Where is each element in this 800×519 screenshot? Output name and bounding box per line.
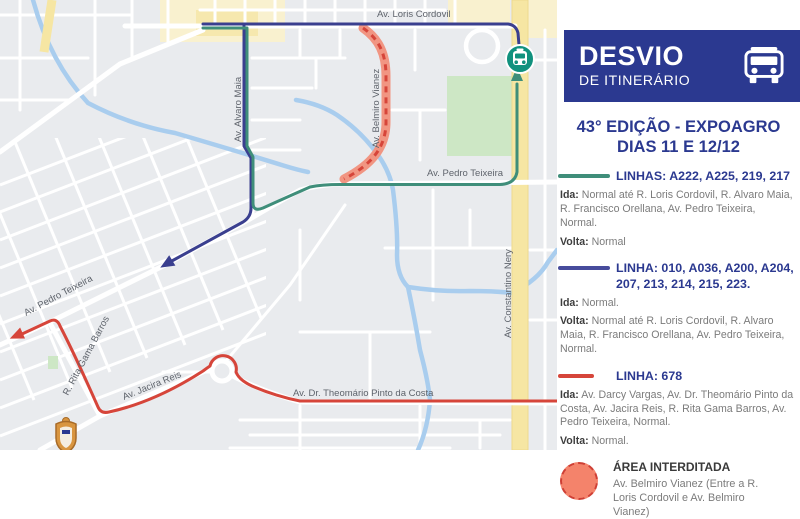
street-label-pedro-teixeira-mid: Av. Pedro Teixeira bbox=[427, 168, 504, 179]
ida-label: Ida: bbox=[560, 389, 579, 401]
closed-area-description: Av. Belmiro Vianez (Entre a R. Loris Cor… bbox=[613, 477, 781, 519]
street-label-alvaro-maia: Av. Alvaro Maia bbox=[233, 76, 244, 142]
city-crest-icon bbox=[56, 418, 76, 451]
closed-area-legend: ÁREA INTERDITADA Av. Belmiro Vianez (Ent… bbox=[558, 460, 794, 519]
volta-description: Volta: Normal até R. Loris Cordovil, R. … bbox=[560, 315, 794, 356]
route-sections: LINHAS: A222, A225, 219, 217 Ida: Normal… bbox=[557, 169, 800, 519]
event-title-line1: 43° EDIÇÃO - EXPOAGRO bbox=[557, 117, 800, 137]
small-park bbox=[48, 356, 58, 369]
closed-area-title: ÁREA INTERDITADA bbox=[613, 460, 781, 474]
panel-header: DESVIO DE ITINERÁRIO bbox=[564, 30, 800, 102]
section-title: LINHA: 010, A036, A200, A204, 207, 213, … bbox=[616, 261, 794, 291]
section-title: LINHA: 678 bbox=[616, 369, 682, 384]
city-map: Av. Loris Cordovil Av. Alvaro Maia Av. B… bbox=[0, 0, 557, 450]
header-subtitle: DE ITINERÁRIO bbox=[579, 72, 690, 88]
route-section-blue: LINHA: 010, A036, A200, A204, 207, 213, … bbox=[558, 261, 794, 356]
volta-description: Volta: Normal. bbox=[560, 435, 794, 449]
street-label-constantino-nery: Av. Constantino Nery bbox=[503, 249, 514, 338]
section-heading: LINHA: 678 bbox=[558, 369, 794, 384]
ida-description: Ida: Normal. bbox=[560, 297, 794, 311]
volta-label: Volta: bbox=[560, 236, 589, 248]
street-label-loris-cordovil: Av. Loris Cordovil bbox=[377, 9, 451, 20]
header-title: DESVIO bbox=[579, 44, 690, 70]
section-heading: LINHAS: A222, A225, 219, 217 bbox=[558, 169, 794, 184]
green-line-swatch bbox=[558, 174, 610, 178]
bus-icon bbox=[741, 46, 787, 86]
closed-area-circle-icon bbox=[560, 462, 598, 500]
street-label-theomario: Av. Dr. Theomário Pinto da Costa bbox=[293, 388, 434, 399]
event-title: 43° EDIÇÃO - EXPOAGRO DIAS 11 E 12/12 bbox=[557, 117, 800, 157]
bus-stop-marker-icon bbox=[506, 45, 534, 73]
ida-label: Ida: bbox=[560, 189, 579, 201]
volta-label: Volta: bbox=[560, 435, 589, 447]
ida-description: Ida: Av. Darcy Vargas, Av. Dr. Theomário… bbox=[560, 389, 794, 430]
route-section-red: LINHA: 678 Ida: Av. Darcy Vargas, Av. Dr… bbox=[558, 369, 794, 449]
route-section-green: LINHAS: A222, A225, 219, 217 Ida: Normal… bbox=[558, 169, 794, 249]
header-text: DESVIO DE ITINERÁRIO bbox=[579, 44, 690, 89]
city-map-canvas: Av. Loris Cordovil Av. Alvaro Maia Av. B… bbox=[0, 0, 557, 450]
street-label-belmiro-vianez: Av. Belmiro Vianez bbox=[371, 69, 382, 148]
info-panel: DESVIO DE ITINERÁRIO 43° EDIÇÃO - EXPOAG… bbox=[557, 0, 800, 450]
volta-description: Volta: Normal bbox=[560, 236, 794, 250]
roundabout bbox=[212, 361, 232, 381]
closed-area-text: ÁREA INTERDITADA Av. Belmiro Vianez (Ent… bbox=[613, 460, 781, 519]
section-title: LINHAS: A222, A225, 219, 217 bbox=[616, 169, 790, 184]
ida-description: Ida: Normal até R. Loris Cordovil, R. Al… bbox=[560, 189, 794, 230]
blue-line-swatch bbox=[558, 266, 610, 270]
event-title-line2: DIAS 11 E 12/12 bbox=[557, 137, 800, 157]
detour-notice: Av. Loris Cordovil Av. Alvaro Maia Av. B… bbox=[0, 0, 800, 450]
volta-label: Volta: bbox=[560, 315, 589, 327]
park-area bbox=[447, 76, 513, 156]
red-line-swatch bbox=[558, 374, 594, 378]
ida-label: Ida: bbox=[560, 297, 579, 309]
section-heading: LINHA: 010, A036, A200, A204, 207, 213, … bbox=[558, 261, 794, 291]
